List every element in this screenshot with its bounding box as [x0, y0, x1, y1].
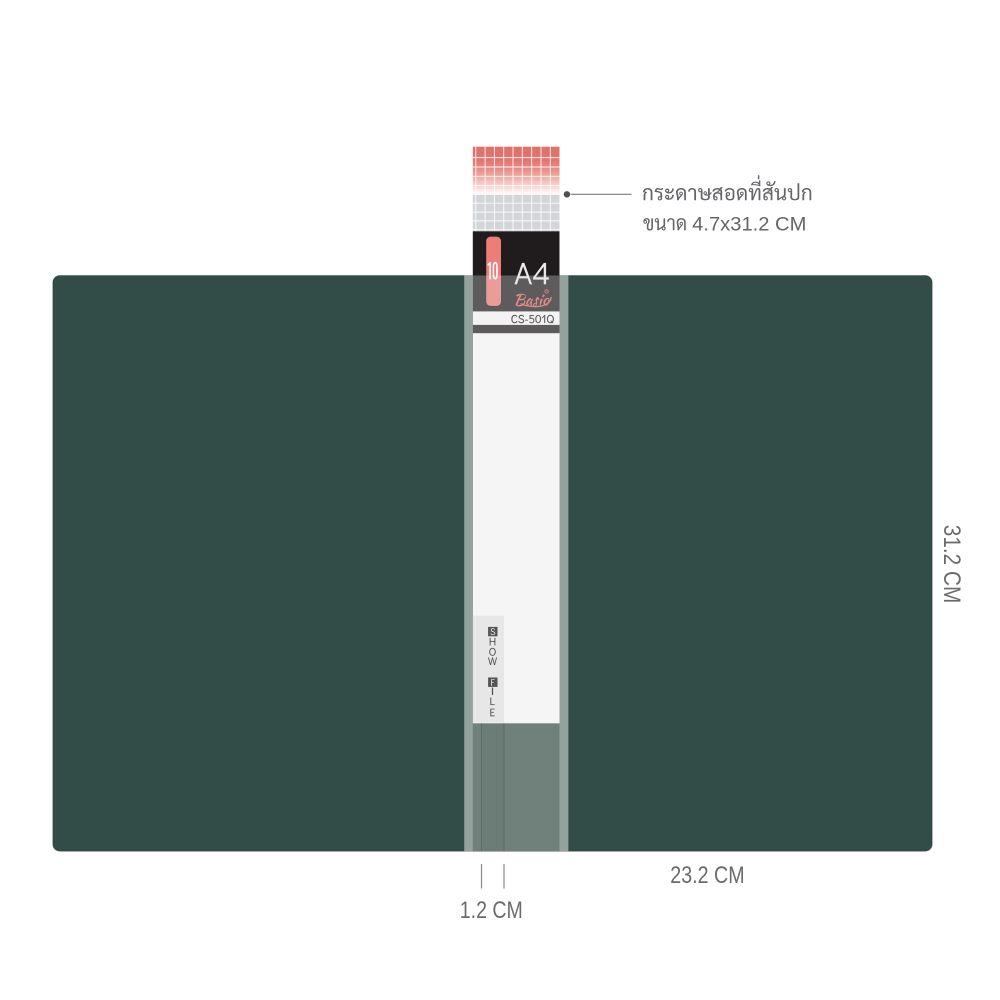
svg-text:1.2 CM: 1.2 CM	[460, 898, 523, 924]
svg-text:4.7x31.2 CM: 4.7x31.2 CM	[692, 214, 806, 235]
svg-text:23.2 CM: 23.2 CM	[670, 863, 744, 889]
svg-text:31.2 CM: 31.2 CM	[938, 525, 964, 604]
